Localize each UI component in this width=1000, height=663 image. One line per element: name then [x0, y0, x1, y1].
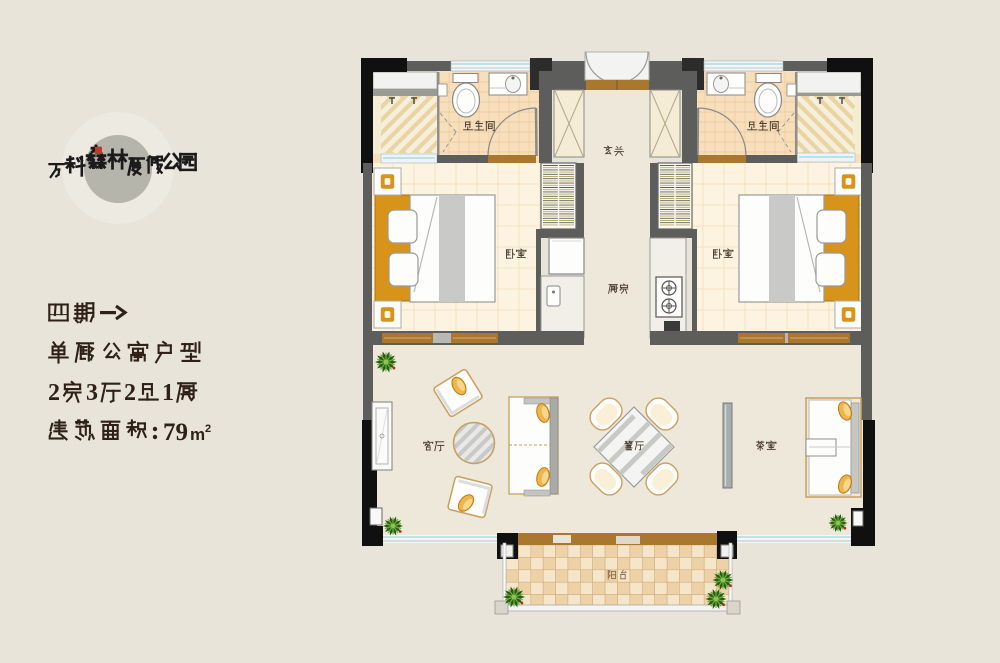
svg-text:3: 3 [86, 380, 98, 406]
svg-text:79: 79 [163, 419, 188, 446]
svg-text:m: m [190, 425, 205, 444]
svg-text:2: 2 [205, 423, 211, 435]
svg-text:2: 2 [48, 380, 60, 406]
svg-text:1: 1 [162, 380, 174, 406]
svg-text:2: 2 [124, 380, 136, 406]
